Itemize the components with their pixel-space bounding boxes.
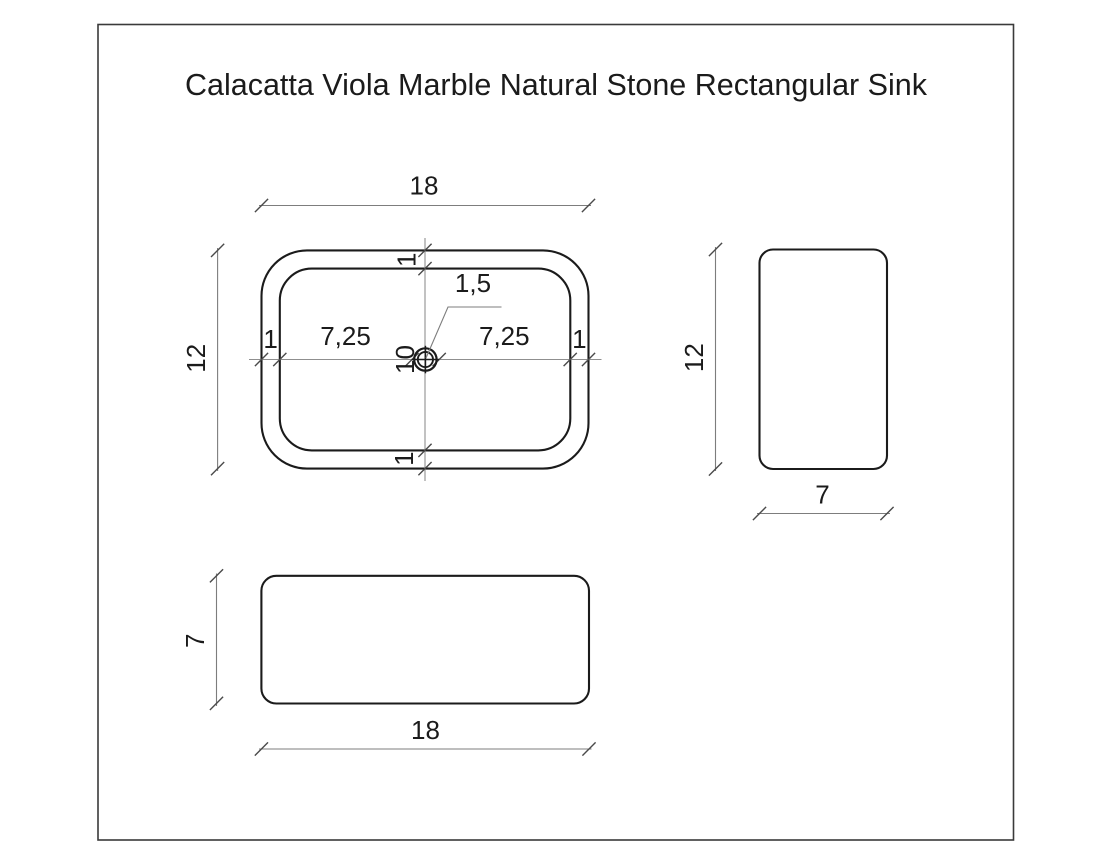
svg-text:12: 12 [679,343,709,372]
svg-text:12: 12 [181,344,211,373]
svg-text:7: 7 [180,634,210,648]
svg-text:10: 10 [390,345,420,374]
svg-text:1: 1 [389,451,419,465]
svg-text:7,25: 7,25 [320,321,371,351]
svg-text:Calacatta Viola Marble Natural: Calacatta Viola Marble Natural Stone Rec… [185,68,928,102]
svg-text:18: 18 [411,715,440,745]
svg-text:7: 7 [815,480,829,510]
svg-text:1: 1 [263,324,277,354]
svg-text:7,25: 7,25 [479,321,530,351]
svg-text:1,5: 1,5 [455,268,491,298]
svg-text:18: 18 [410,171,439,201]
svg-text:1: 1 [392,253,422,267]
svg-text:1: 1 [572,324,586,354]
